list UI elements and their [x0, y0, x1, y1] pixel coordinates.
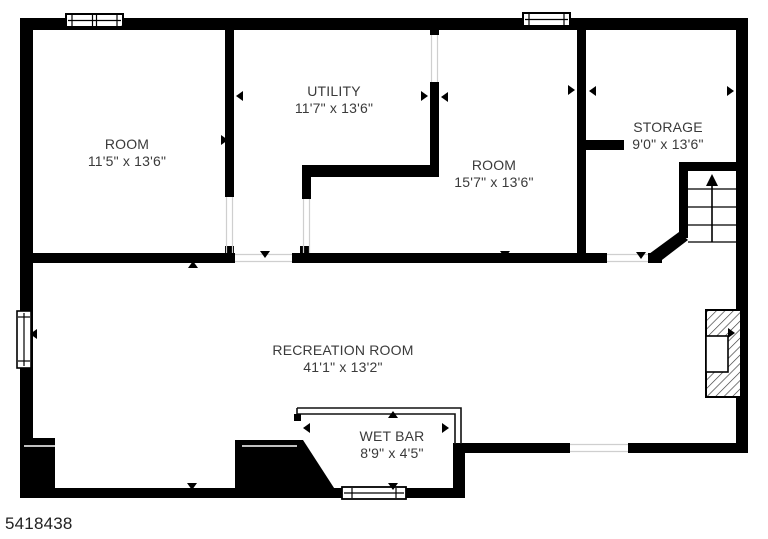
room-name: RECREATION ROOM	[272, 342, 413, 359]
room-name: UTILITY	[295, 83, 373, 100]
fireplace	[706, 310, 741, 397]
floorplan: ROOM 11'5" x 13'6" UTILITY 11'7" x 13'6"…	[0, 0, 768, 539]
window-wet-bar-icon	[342, 487, 406, 499]
room-label-room-right: ROOM 15'7" x 13'6"	[454, 157, 533, 190]
room-dimensions: 41'1" x 13'2"	[272, 359, 413, 376]
room-name: ROOM	[454, 157, 533, 174]
window-left-icon	[17, 311, 31, 368]
room-dimensions: 11'7" x 13'6"	[295, 100, 373, 117]
solid-mass-center	[235, 440, 336, 498]
room-label-wet-bar: WET BAR 8'9" x 4'5"	[360, 428, 425, 461]
room-dimensions: 15'7" x 13'6"	[454, 174, 533, 191]
solid-mass-left	[20, 438, 55, 498]
room-label-recreation-room: RECREATION ROOM 41'1" x 13'2"	[272, 342, 413, 375]
listing-id: 5418438	[5, 514, 73, 534]
room-label-room-left: ROOM 11'5" x 13'6"	[88, 136, 166, 169]
room-dimensions: 9'0" x 13'6"	[632, 136, 703, 153]
room-name: WET BAR	[360, 428, 425, 445]
window-top-left-icon	[66, 14, 123, 27]
room-dimensions: 11'5" x 13'6"	[88, 153, 166, 170]
room-label-storage: STORAGE 9'0" x 13'6"	[632, 119, 703, 152]
room-name: STORAGE	[632, 119, 703, 136]
window-top-right-icon	[523, 13, 570, 26]
diagonal-wall	[649, 232, 688, 263]
room-name: ROOM	[88, 136, 166, 153]
stairs-up-arrow-icon	[706, 174, 718, 242]
room-dimensions: 8'9" x 4'5"	[360, 445, 425, 462]
room-label-utility: UTILITY 11'7" x 13'6"	[295, 83, 373, 116]
